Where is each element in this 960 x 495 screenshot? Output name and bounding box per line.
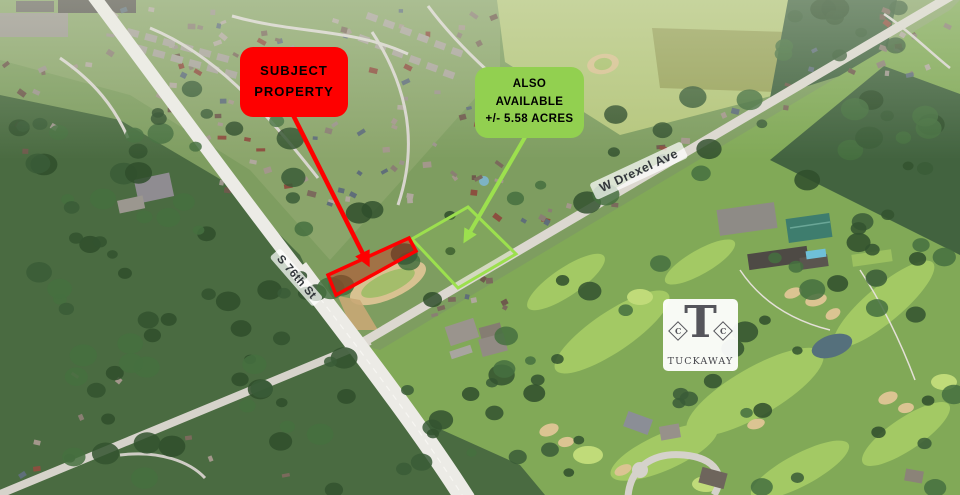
- available-arrow: [470, 132, 528, 232]
- aerial-map: SUBJECT PROPERTY ALSO AVAILABLE +/- 5.58…: [0, 0, 960, 495]
- available-parcel-outline: [412, 207, 516, 288]
- subject-callout-line1: SUBJECT: [240, 61, 348, 82]
- available-callout-line1: ALSO: [475, 76, 584, 94]
- tuckaway-logo: T C C TUCKAWAY: [663, 299, 738, 371]
- available-callout-line3: +/- 5.58 ACRES: [475, 111, 584, 129]
- available-callout-line2: AVAILABLE: [475, 94, 584, 112]
- logo-name: TUCKAWAY: [663, 356, 738, 367]
- subject-arrow: [288, 105, 363, 254]
- also-available-callout: ALSO AVAILABLE +/- 5.58 ACRES: [475, 67, 584, 138]
- logo-monogram-c-right: C: [720, 327, 726, 335]
- subject-property-callout: SUBJECT PROPERTY: [240, 47, 348, 117]
- subject-callout-line2: PROPERTY: [240, 82, 348, 103]
- logo-monogram-c-left: C: [675, 327, 681, 335]
- subject-parcel-outline: [328, 238, 416, 295]
